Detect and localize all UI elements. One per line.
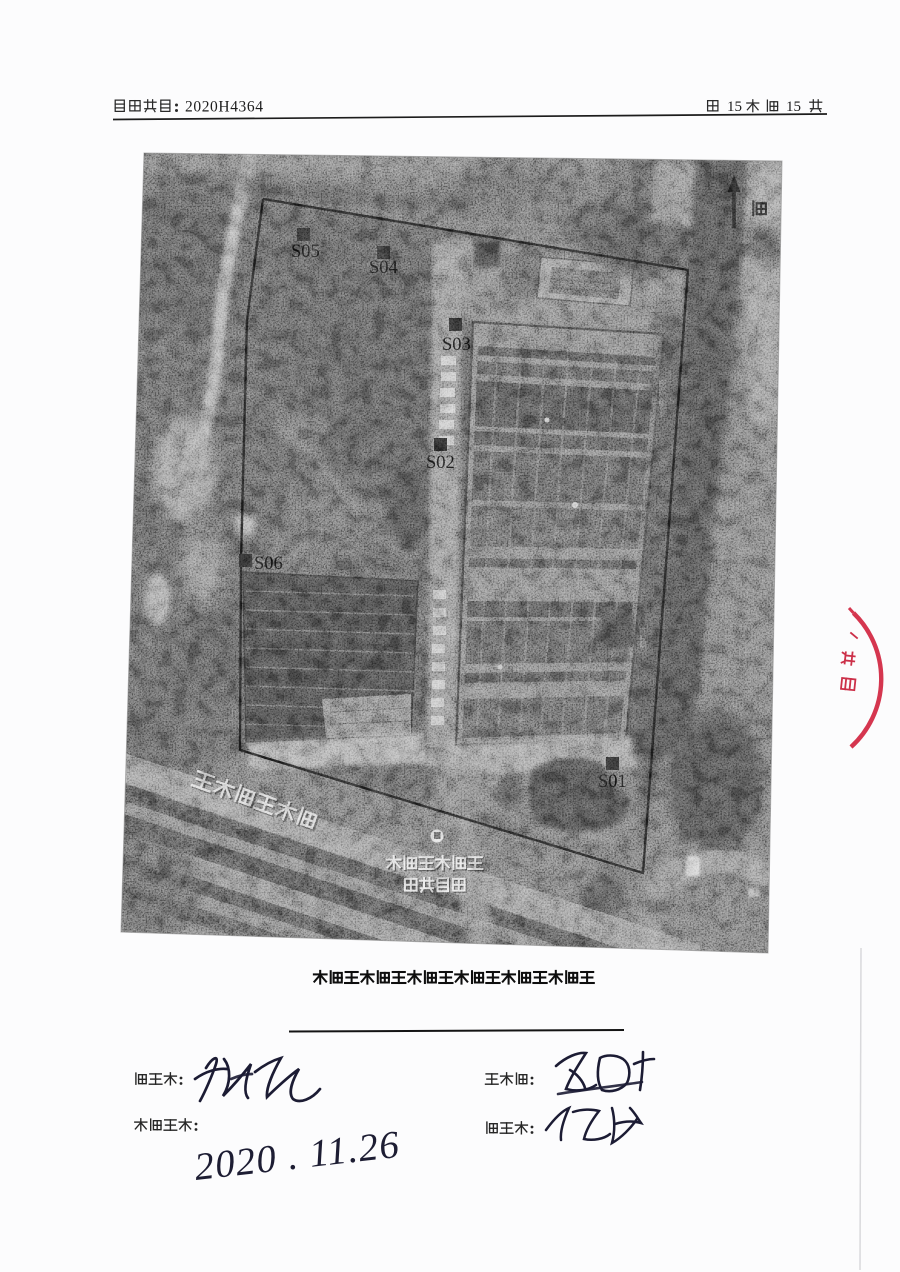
svg-text:15: 15 (786, 99, 801, 115)
svg-text:2020 . 11.26: 2020 . 11.26 (192, 1123, 402, 1189)
svg-text:15: 15 (727, 99, 742, 115)
svg-text:2020H4364: 2020H4364 (185, 99, 264, 116)
